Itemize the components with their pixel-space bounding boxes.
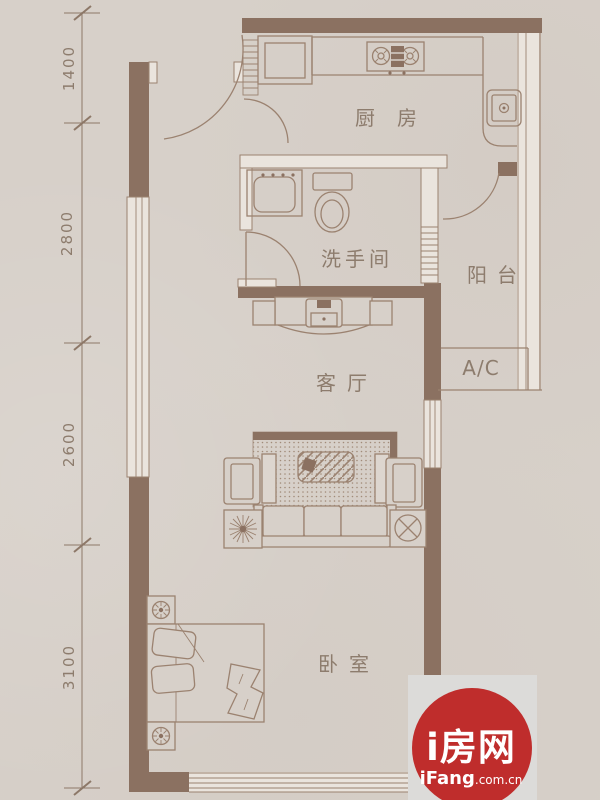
speaker-right (370, 301, 392, 325)
fan-table (390, 510, 426, 547)
sofa (254, 505, 396, 547)
window-balcony-hatch (421, 227, 438, 283)
washbasin (247, 170, 302, 216)
bedroom: 卧室 (147, 596, 380, 750)
floorplan-page: 1400 2800 2600 3100 (0, 0, 600, 800)
watermark-brand: i房网 (426, 726, 516, 769)
left-wall-upper (129, 62, 149, 197)
dim-label-2800: 2800 (58, 210, 76, 256)
window-left (127, 197, 149, 477)
entry-jamb (149, 62, 157, 83)
nightstand-top (147, 596, 175, 624)
bathroom-label: 洗手间 (321, 247, 393, 271)
bed (147, 624, 264, 722)
kitchen: 厨房 (258, 36, 521, 146)
right-wall-low (424, 468, 441, 675)
window-bottom (189, 772, 424, 792)
nightstand-bottom (147, 722, 175, 750)
balcony-glass-wall (517, 33, 541, 390)
right-wall-mid (424, 283, 441, 401)
dim-label-2600: 2600 (60, 421, 78, 467)
dimension-column: 1400 2800 2600 3100 (58, 6, 100, 795)
plant (224, 510, 262, 548)
water-heater (487, 90, 521, 126)
entry-door-arc (164, 35, 243, 139)
balcony-label: 阳台 (467, 263, 527, 287)
watermark-site-suffix: .com.cn (475, 773, 522, 787)
tv-icon (306, 299, 342, 327)
toilet (313, 173, 352, 232)
bottom-wall-corner (129, 772, 190, 792)
kitchen-bathroom-wall (240, 155, 447, 168)
tv-cabinet (253, 297, 392, 334)
side-table-left (262, 454, 276, 503)
bathroom: 洗手间 (247, 170, 393, 271)
tv-wall-step (238, 279, 276, 287)
bathroom-left-wall (240, 168, 252, 230)
coffee-table (298, 452, 354, 482)
dim-label-1400: 1400 (60, 45, 78, 91)
left-wall-lower (129, 477, 149, 792)
ac-label: A/C (462, 356, 499, 380)
armchair-left (224, 458, 260, 504)
balcony-left-wall (421, 168, 438, 227)
watermark: i房网 iFang.com.cn (408, 675, 537, 800)
window-right (424, 400, 441, 468)
bathroom-bottom-wall (238, 286, 433, 298)
dim-label-3100: 3100 (60, 644, 78, 690)
kitchen-label: 厨房 (355, 106, 439, 130)
watermark-site-bold: iFang (420, 768, 475, 789)
stove (367, 42, 424, 75)
top-wall (242, 18, 542, 33)
speaker-left (253, 301, 275, 325)
floorplan-canvas: 1400 2800 2600 3100 (0, 0, 600, 800)
balcony-door-arc (443, 173, 499, 219)
bathroom-door (246, 232, 300, 286)
bedroom-label: 卧室 (318, 652, 380, 676)
kitchen-sink (258, 36, 312, 84)
armchair-right (386, 458, 422, 507)
living-label: 客厅 (316, 371, 378, 395)
living-room: 客厅 (224, 371, 426, 548)
